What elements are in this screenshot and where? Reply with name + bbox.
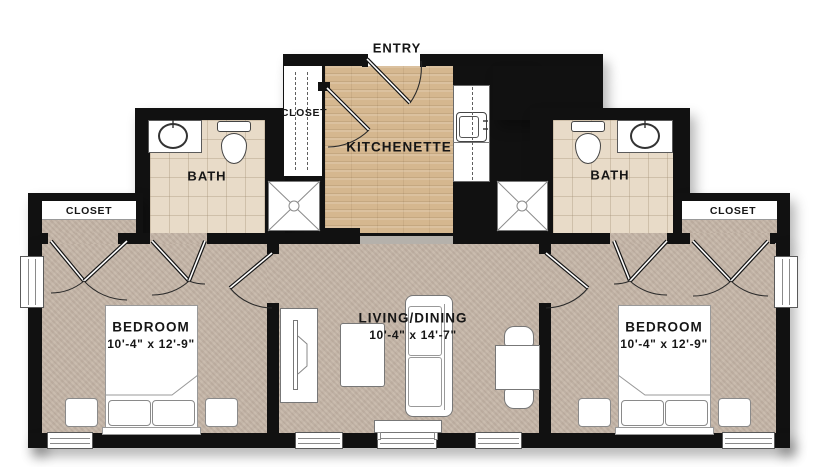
closet-door-hinge-stub [318,82,330,91]
bed-right-headboard [615,427,714,435]
closet-left-door-opening [48,233,118,244]
wall-bedroomR-living-stub [539,240,551,254]
console-table-leg [434,432,438,440]
bedroom-left-dims: 10'-4" x 12'-9" [107,337,194,351]
entry-closet-rod-dash-2 [307,72,308,170]
bedroom-left-label: BEDROOM [112,320,190,335]
sink-right-icon [630,123,660,149]
entry-door-stop-left [362,54,368,67]
entry-closet-floor [284,66,322,176]
entry-closet-label: CLOSET [281,107,327,119]
nightstand [205,398,238,427]
closet-left-floor [42,220,136,233]
pillow [621,400,664,426]
wall-bedroomL-living [267,303,279,433]
living-dims: 10'-4" x 14'-7" [369,328,456,342]
nightstand [65,398,98,427]
closet-right-floor [682,220,777,233]
dining-chair [504,326,534,347]
window-bedroomR-side [774,256,798,308]
shower-left [268,181,320,231]
closet-right-door-opening [690,233,770,244]
window-living-1 [295,432,343,449]
kitchenette-threshold [360,236,453,244]
entry-label: ENTRY [373,41,422,56]
window-bedroomL-bottom [47,432,93,449]
entry-closet-rod-dash-1 [295,72,296,170]
window-bedroomL-side [20,256,44,308]
sofa-cushion [408,357,442,407]
living-label: LIVING/DINING [358,311,467,326]
bath-right-door-opening [610,233,667,244]
wall-bedroomR-living [539,303,551,433]
closet-right-label: CLOSET [710,205,756,217]
shower-right [497,181,548,231]
floor-plan: ENTRY KITCHENETTE CLOSET BATH BATH CLOSE… [0,0,818,467]
bedroom-right-label: BEDROOM [625,320,703,335]
dining-chair [504,388,534,409]
nightstand [718,398,751,427]
sink-left-icon [158,123,188,149]
pillow [108,400,151,426]
console-table-leg [377,432,381,440]
toilet-right-tank-icon [571,121,605,132]
toilet-left-tank-icon [217,121,251,132]
kitchen-sink-basin [459,116,479,138]
bath-left-label: BATH [187,169,226,184]
nightstand [578,398,611,427]
entry-door-stop-right [420,54,426,67]
bedroomR-door-opening [539,254,551,303]
dining-table [495,345,540,390]
bedroom-right-dims: 10'-4" x 12'-9" [620,337,707,351]
window-bedroomR-bottom [722,432,775,449]
window-living-3 [475,432,522,449]
bath-left-door-opening [150,233,207,244]
tv-console [280,308,318,403]
tv-icon [293,320,298,390]
wall-kitchenette-notch [325,228,360,240]
wall-top-entry [283,54,603,66]
bath-right-label: BATH [590,168,629,183]
wall-bedroomL-living-stub [267,240,279,254]
pillow [665,400,708,426]
pillow [152,400,195,426]
counter-upper-cabinet-dash [472,87,473,180]
bed-left-headboard [102,427,201,435]
window-living-2 [377,432,437,449]
bedroomL-door-opening [267,254,279,303]
console-table [374,420,442,433]
closet-left-label: CLOSET [66,205,112,217]
kitchenette-label: KITCHENETTE [346,140,452,155]
